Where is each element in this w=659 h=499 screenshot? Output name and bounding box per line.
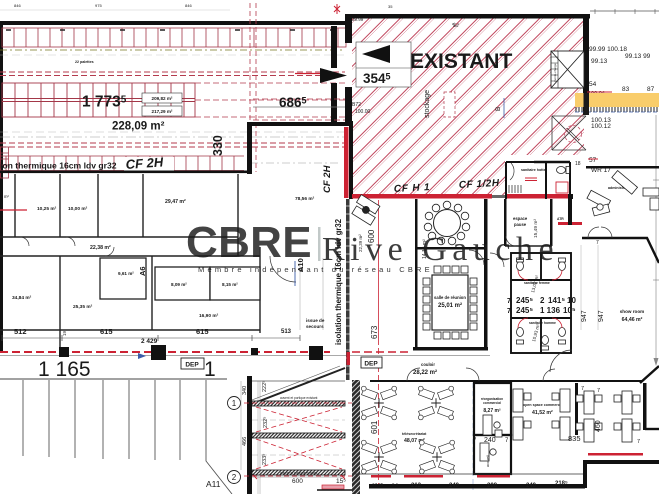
svg-text:1 7735: 1 7735 <box>82 94 127 111</box>
svg-text:A6: A6 <box>138 266 147 276</box>
svg-text:228,09 m²: 228,09 m² <box>112 121 165 133</box>
svg-text:209,82 m²: 209,82 m² <box>152 96 173 101</box>
svg-text:show room: show room <box>620 309 645 314</box>
svg-text:340: 340 <box>242 386 248 395</box>
svg-text:22,38 m²: 22,38 m² <box>90 245 111 251</box>
svg-text:6,1: 6,1 <box>392 482 399 487</box>
svg-text:217,29 m²: 217,29 m² <box>152 109 173 114</box>
svg-text:2: 2 <box>540 296 545 305</box>
svg-text:CF 1/2H: CF 1/2H <box>459 178 501 191</box>
svg-text:513: 513 <box>281 329 292 335</box>
svg-text:salle de réunion: salle de réunion <box>434 295 466 300</box>
svg-text:issue de: issue de <box>306 318 325 323</box>
svg-text:99.99 100.18: 99.99 100.18 <box>589 46 627 53</box>
svg-text:240: 240 <box>449 483 460 489</box>
svg-text:EXISTANT: EXISTANT <box>410 50 512 73</box>
svg-text:947: 947 <box>581 310 588 322</box>
svg-text:B: B <box>495 107 502 111</box>
svg-text:846: 846 <box>185 3 192 8</box>
svg-text:512: 512 <box>14 327 27 336</box>
svg-text:232⁵: 232⁵ <box>262 417 269 428</box>
svg-text:39.99: 39.99 <box>352 17 364 22</box>
svg-text:8,27 m²: 8,27 m² <box>483 408 501 414</box>
svg-text:460: 460 <box>595 420 602 432</box>
svg-text:35: 35 <box>388 4 393 9</box>
svg-text:sanitaire homme: sanitaire homme <box>529 321 556 325</box>
svg-text:218⁵: 218⁵ <box>555 481 568 487</box>
svg-text:open space commercial: open space commercial <box>523 403 564 407</box>
svg-text:83: 83 <box>622 86 630 93</box>
svg-text:245⁵: 245⁵ <box>516 306 533 315</box>
svg-text:Membre indépendant du réseau C: Membre indépendant du réseau CBRE <box>198 265 433 274</box>
svg-text:CF H 1: CF H 1 <box>394 182 431 195</box>
svg-text:41,52 m²: 41,52 m² <box>532 410 553 416</box>
svg-text:7: 7 <box>507 308 511 315</box>
svg-text:22 palettes: 22 palettes <box>75 60 94 64</box>
svg-text:87: 87 <box>647 86 655 93</box>
svg-text:25,35 m²: 25,35 m² <box>73 304 93 310</box>
svg-text:commercial: commercial <box>483 401 501 405</box>
svg-text:2: 2 <box>232 473 237 482</box>
svg-text:9,61 m²: 9,61 m² <box>118 271 134 276</box>
svg-text:7: 7 <box>597 388 600 394</box>
svg-text:sanitaire hotte: sanitaire hotte <box>521 168 546 172</box>
svg-text:auvent et portique existant: auvent et portique existant <box>280 396 318 400</box>
svg-text:7: 7 <box>637 439 640 445</box>
svg-text:2 429: 2 429 <box>141 338 158 345</box>
svg-text:10,25 m²: 10,25 m² <box>37 206 57 212</box>
svg-text:18: 18 <box>575 161 581 167</box>
svg-text:DEP: DEP <box>185 362 199 369</box>
svg-text:975: 975 <box>95 3 102 8</box>
svg-text:CF 2H: CF 2H <box>125 154 164 172</box>
svg-text:alu: alu <box>453 23 458 28</box>
svg-text:212: 212 <box>411 483 422 489</box>
svg-text:stockage: stockage <box>424 90 431 118</box>
svg-text:17,45: 17,45 <box>372 482 384 487</box>
svg-text:673: 673 <box>370 325 379 339</box>
svg-text:222⁵: 222⁵ <box>261 381 268 392</box>
svg-text:466: 466 <box>242 437 248 446</box>
svg-text:8,09 m²: 8,09 m² <box>171 282 187 287</box>
svg-text:1 165: 1 165 <box>38 358 91 381</box>
svg-text:64,46 m²: 64,46 m² <box>622 317 643 323</box>
svg-text:télésecrétariat: télésecrétariat <box>402 432 427 436</box>
svg-text:141⁵: 141⁵ <box>548 296 565 305</box>
svg-text:m²: m² <box>4 194 9 199</box>
svg-text:10,00 m²: 10,00 m² <box>68 206 88 212</box>
svg-text:835: 835 <box>568 434 581 443</box>
svg-text:615: 615 <box>196 327 209 336</box>
svg-text:233⁵: 233⁵ <box>261 454 268 465</box>
svg-text:pause: pause <box>514 222 527 227</box>
svg-text:7: 7 <box>507 298 511 305</box>
svg-text:25,01 m²: 25,01 m² <box>438 302 462 309</box>
svg-text:16,90 m²: 16,90 m² <box>199 313 219 319</box>
svg-text:947: 947 <box>598 310 605 322</box>
svg-text:couloir: couloir <box>421 362 435 367</box>
svg-text:CBRE: CBRE <box>186 218 312 267</box>
svg-text:330: 330 <box>211 135 225 156</box>
svg-text:54: 54 <box>589 81 597 88</box>
svg-text:99.13: 99.13 <box>591 58 608 65</box>
svg-text:615: 615 <box>100 327 113 336</box>
svg-text:240: 240 <box>526 483 537 489</box>
svg-text:28,22 m²: 28,22 m² <box>413 369 437 376</box>
svg-text:monte-charge: monte-charge <box>553 63 557 82</box>
svg-text:DEP: DEP <box>364 361 378 368</box>
svg-text:10: 10 <box>567 296 576 305</box>
svg-text:secours: secours <box>306 324 324 329</box>
svg-text:245⁵: 245⁵ <box>516 296 533 305</box>
svg-text:1 136: 1 136 <box>540 306 561 315</box>
svg-text:10⁵: 10⁵ <box>563 306 576 315</box>
svg-text:7: 7 <box>581 386 584 392</box>
svg-text:29,47 m²: 29,47 m² <box>165 199 186 205</box>
svg-text:601: 601 <box>370 420 379 434</box>
svg-text:ion thermique 16cm ldv gr32: ion thermique 16cm ldv gr32 <box>0 161 117 171</box>
svg-text:57: 57 <box>589 157 597 164</box>
svg-text:846: 846 <box>14 3 21 8</box>
svg-text:1: 1 <box>232 399 237 408</box>
svg-text:A11: A11 <box>206 479 221 489</box>
svg-text:accueil: accueil <box>486 455 490 467</box>
svg-text:100.00: 100.00 <box>355 109 371 115</box>
svg-text:99.13 99: 99.13 99 <box>625 53 651 60</box>
svg-text:600: 600 <box>292 478 303 485</box>
svg-text:19: 19 <box>62 330 67 336</box>
svg-text:208: 208 <box>487 483 498 489</box>
svg-text:8,15 m²: 8,15 m² <box>222 282 238 287</box>
svg-text:auvent et portique existant: auvent et portique existant <box>280 471 318 475</box>
svg-text:34,84 m²: 34,84 m² <box>12 295 32 301</box>
svg-text:ATR: ATR <box>557 217 564 221</box>
svg-text:espace: espace <box>513 216 528 221</box>
svg-text:100.12: 100.12 <box>591 123 611 130</box>
svg-text:240: 240 <box>484 437 496 444</box>
svg-text:CF 2H: CF 2H <box>322 164 333 193</box>
svg-text:7: 7 <box>596 240 599 246</box>
svg-text:1: 1 <box>204 358 216 381</box>
svg-text:B72: B72 <box>352 102 361 108</box>
svg-text:Rive Gauche: Rive Gauche <box>322 231 559 268</box>
svg-text:78,56 m²: 78,56 m² <box>295 196 315 202</box>
